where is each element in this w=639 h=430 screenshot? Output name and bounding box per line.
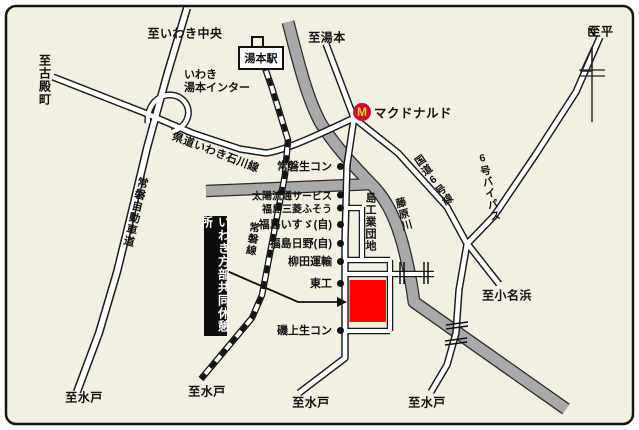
- poi-isuzu: 福島いすゞ(自): [259, 216, 344, 232]
- poi-hino: 福島日野(自): [270, 235, 344, 251]
- label-to-mito-street: 至水戸: [292, 394, 330, 411]
- destination-name: いわき方部共同休憩所: [199, 216, 233, 336]
- poi-label: 東工: [310, 275, 332, 291]
- label-to-kodonomachi: 至古殿町: [37, 54, 54, 106]
- poi-isogami-namacon: 磯上生コン: [277, 322, 344, 338]
- poi-yanagida-unyu: 柳田運輸: [288, 253, 344, 269]
- poi-bullet: [337, 258, 344, 265]
- label-industrial-park: 島工業団地: [362, 192, 378, 252]
- poi-label: 常磐生コン: [277, 158, 332, 174]
- poi-bullet: [337, 163, 344, 170]
- route-map: 至いわき中央 至湯本 至平 N 至古殿町 至小名浜 至水戸 至水戸 至水戸 至水…: [0, 0, 639, 430]
- destination-name-box: いわき方部共同休憩所: [204, 216, 227, 336]
- poi-mitsubishi-fuso: 福島三菱ふそう: [262, 201, 344, 216]
- poi-label: 柳田運輸: [288, 253, 332, 269]
- label-to-mito-bypass: 至水戸: [408, 394, 446, 411]
- iwaki-yumoto-ic-label: いわき 湯本インター: [184, 69, 250, 95]
- mcdonalds-m: M: [357, 105, 367, 119]
- poi-bullet: [337, 240, 344, 247]
- poi-bullet: [337, 280, 344, 287]
- poi-bullet: [337, 192, 344, 199]
- poi-label: 福島いすゞ(自): [259, 216, 332, 232]
- label-to-mito-expressway: 至水戸: [65, 389, 103, 406]
- label-to-mito-railway: 至水戸: [188, 383, 226, 400]
- poi-label: 福島日野(自): [270, 235, 332, 251]
- poi-joban-namacon: 常磐生コン: [277, 158, 344, 174]
- poi-bullet: [337, 205, 344, 212]
- label-to-onahama: 至小名浜: [482, 287, 532, 304]
- destination-building: [350, 280, 387, 322]
- label-to-iwaki-chuo: 至いわき中央: [147, 25, 222, 42]
- poi-label: 福島三菱ふそう: [262, 201, 332, 216]
- poi-toko: 東工: [310, 275, 344, 291]
- mcdonalds-icon: M: [353, 103, 371, 121]
- mcdonalds-label: マクドナルド: [374, 103, 452, 122]
- compass-n-label: N: [587, 25, 596, 39]
- poi-label: 磯上生コン: [277, 322, 332, 338]
- ic-label-line2: 湯本インター: [184, 82, 250, 95]
- ic-label-line1: いわき: [184, 69, 250, 82]
- poi-bullet: [337, 327, 344, 334]
- poi-bullet: [337, 221, 344, 228]
- yumoto-station-box: 湯本駅: [238, 46, 284, 70]
- yumoto-station-label: 湯本駅: [245, 50, 278, 66]
- label-to-yumoto: 至湯本: [308, 29, 346, 46]
